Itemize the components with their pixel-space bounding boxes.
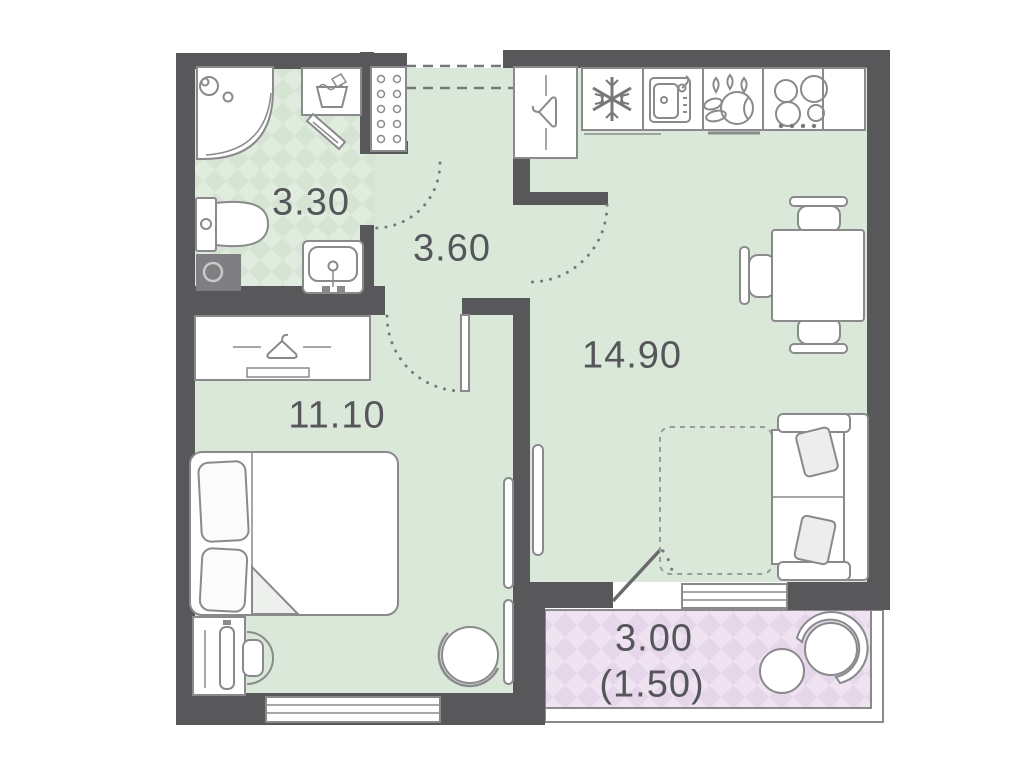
balcony-coefficient-label: (1.50): [599, 664, 704, 707]
desk: [193, 617, 245, 695]
dining-chair-left: [740, 247, 775, 304]
bedroom-window: [266, 697, 440, 722]
balcony-chair: [760, 649, 804, 693]
bed: [190, 452, 398, 615]
hallway-area-label: 3.60: [413, 228, 491, 271]
wall-kitchen-stub-h: [513, 192, 608, 205]
wall-panel-bedroom: [504, 478, 513, 684]
bathroom-sink-icon: [303, 241, 363, 293]
dining-chair-bottom: [790, 318, 847, 353]
wall-top-right: [503, 50, 890, 68]
wall-kitchen-stub-v: [513, 155, 530, 197]
kitchen-counter: [582, 68, 865, 134]
wall-bedroom-living: [513, 298, 530, 693]
dining-table: [772, 230, 864, 321]
floor-plan-canvas: 3.30 3.60 14.90 11.10 3.00 (1.50): [0, 0, 1024, 768]
washing-machine-icon: [302, 68, 361, 115]
bedroom-door-leaf: [461, 315, 469, 391]
bedroom-area-label: 11.10: [288, 395, 385, 438]
wall-panel-living: [533, 445, 543, 555]
dining-chair-top: [790, 197, 847, 232]
shoe-cabinet-icon: [371, 67, 406, 151]
vent-shaft: [196, 254, 241, 291]
entry-closet-icon: [514, 67, 577, 158]
sofa: [772, 414, 868, 580]
living-balcony-window: [682, 584, 787, 608]
balcony-area-label: 3.00: [615, 618, 693, 661]
wall-living-bottom-right: [787, 582, 890, 610]
bathroom-area-label: 3.30: [272, 182, 350, 225]
kitchen-living-area-label: 14.90: [582, 335, 682, 378]
wardrobe-icon: [195, 316, 370, 380]
wall-right: [867, 50, 890, 610]
floor-plan-drawing: [0, 0, 1024, 768]
balcony-table: [805, 623, 857, 675]
